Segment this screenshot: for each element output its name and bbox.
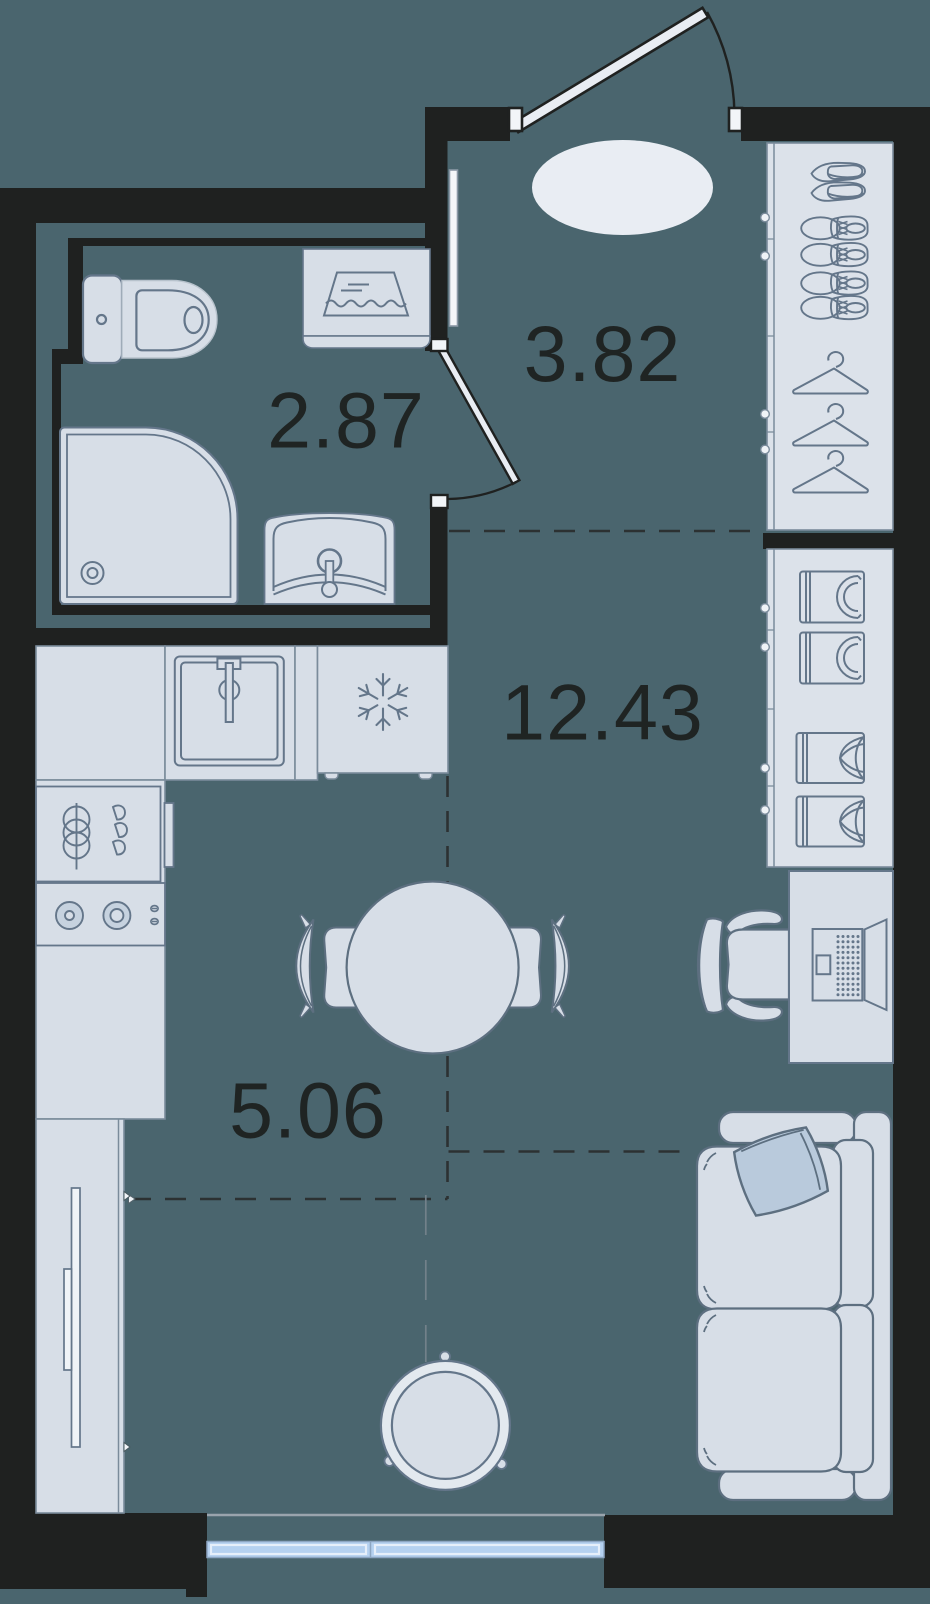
svg-text:12.43: 12.43 bbox=[501, 668, 704, 757]
svg-text:3.82: 3.82 bbox=[524, 309, 682, 398]
svg-text:5.06: 5.06 bbox=[229, 1066, 387, 1155]
svg-text:2.87: 2.87 bbox=[267, 376, 425, 465]
